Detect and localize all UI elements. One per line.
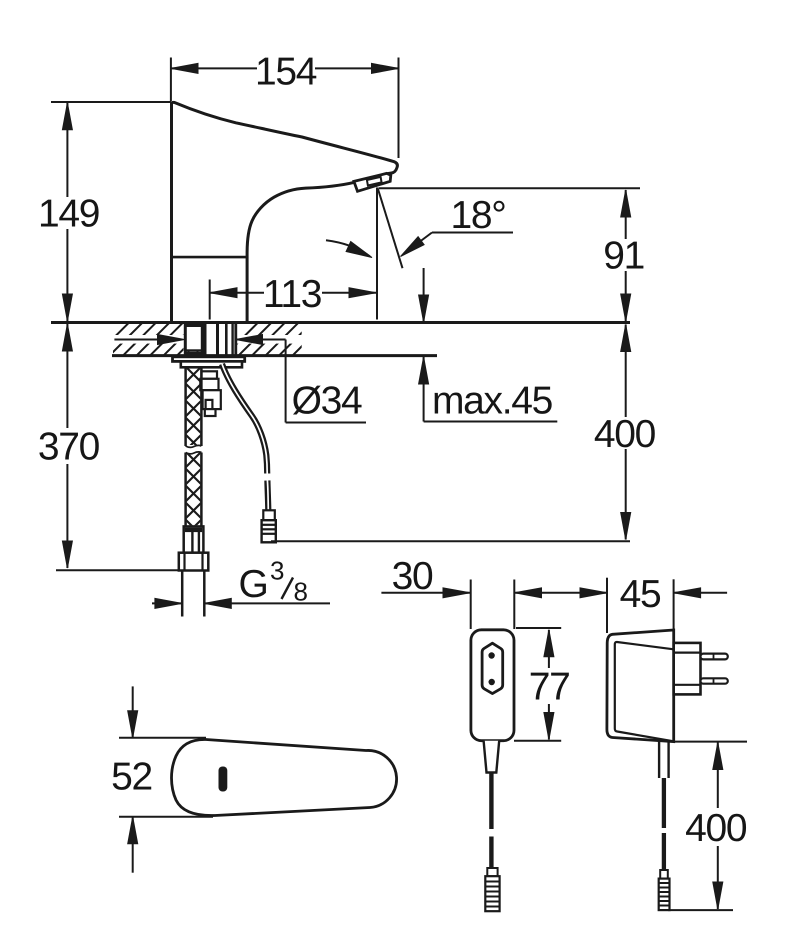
svg-text:45: 45 xyxy=(620,573,661,616)
svg-text:52: 52 xyxy=(111,756,152,799)
svg-text:30: 30 xyxy=(392,555,433,598)
svg-text:370: 370 xyxy=(38,426,100,469)
svg-text:18°: 18° xyxy=(450,194,505,237)
svg-text:8: 8 xyxy=(294,577,308,607)
svg-text:400: 400 xyxy=(594,413,656,456)
svg-text:154: 154 xyxy=(255,50,317,93)
svg-text:400: 400 xyxy=(685,807,747,850)
svg-text:max.45: max.45 xyxy=(432,379,553,422)
svg-text:77: 77 xyxy=(529,666,570,709)
svg-text:G: G xyxy=(239,563,268,606)
svg-text:3: 3 xyxy=(270,556,284,586)
svg-text:Ø34: Ø34 xyxy=(292,379,362,422)
svg-text:113: 113 xyxy=(263,273,321,316)
svg-text:91: 91 xyxy=(603,234,644,277)
svg-text:149: 149 xyxy=(38,193,99,236)
